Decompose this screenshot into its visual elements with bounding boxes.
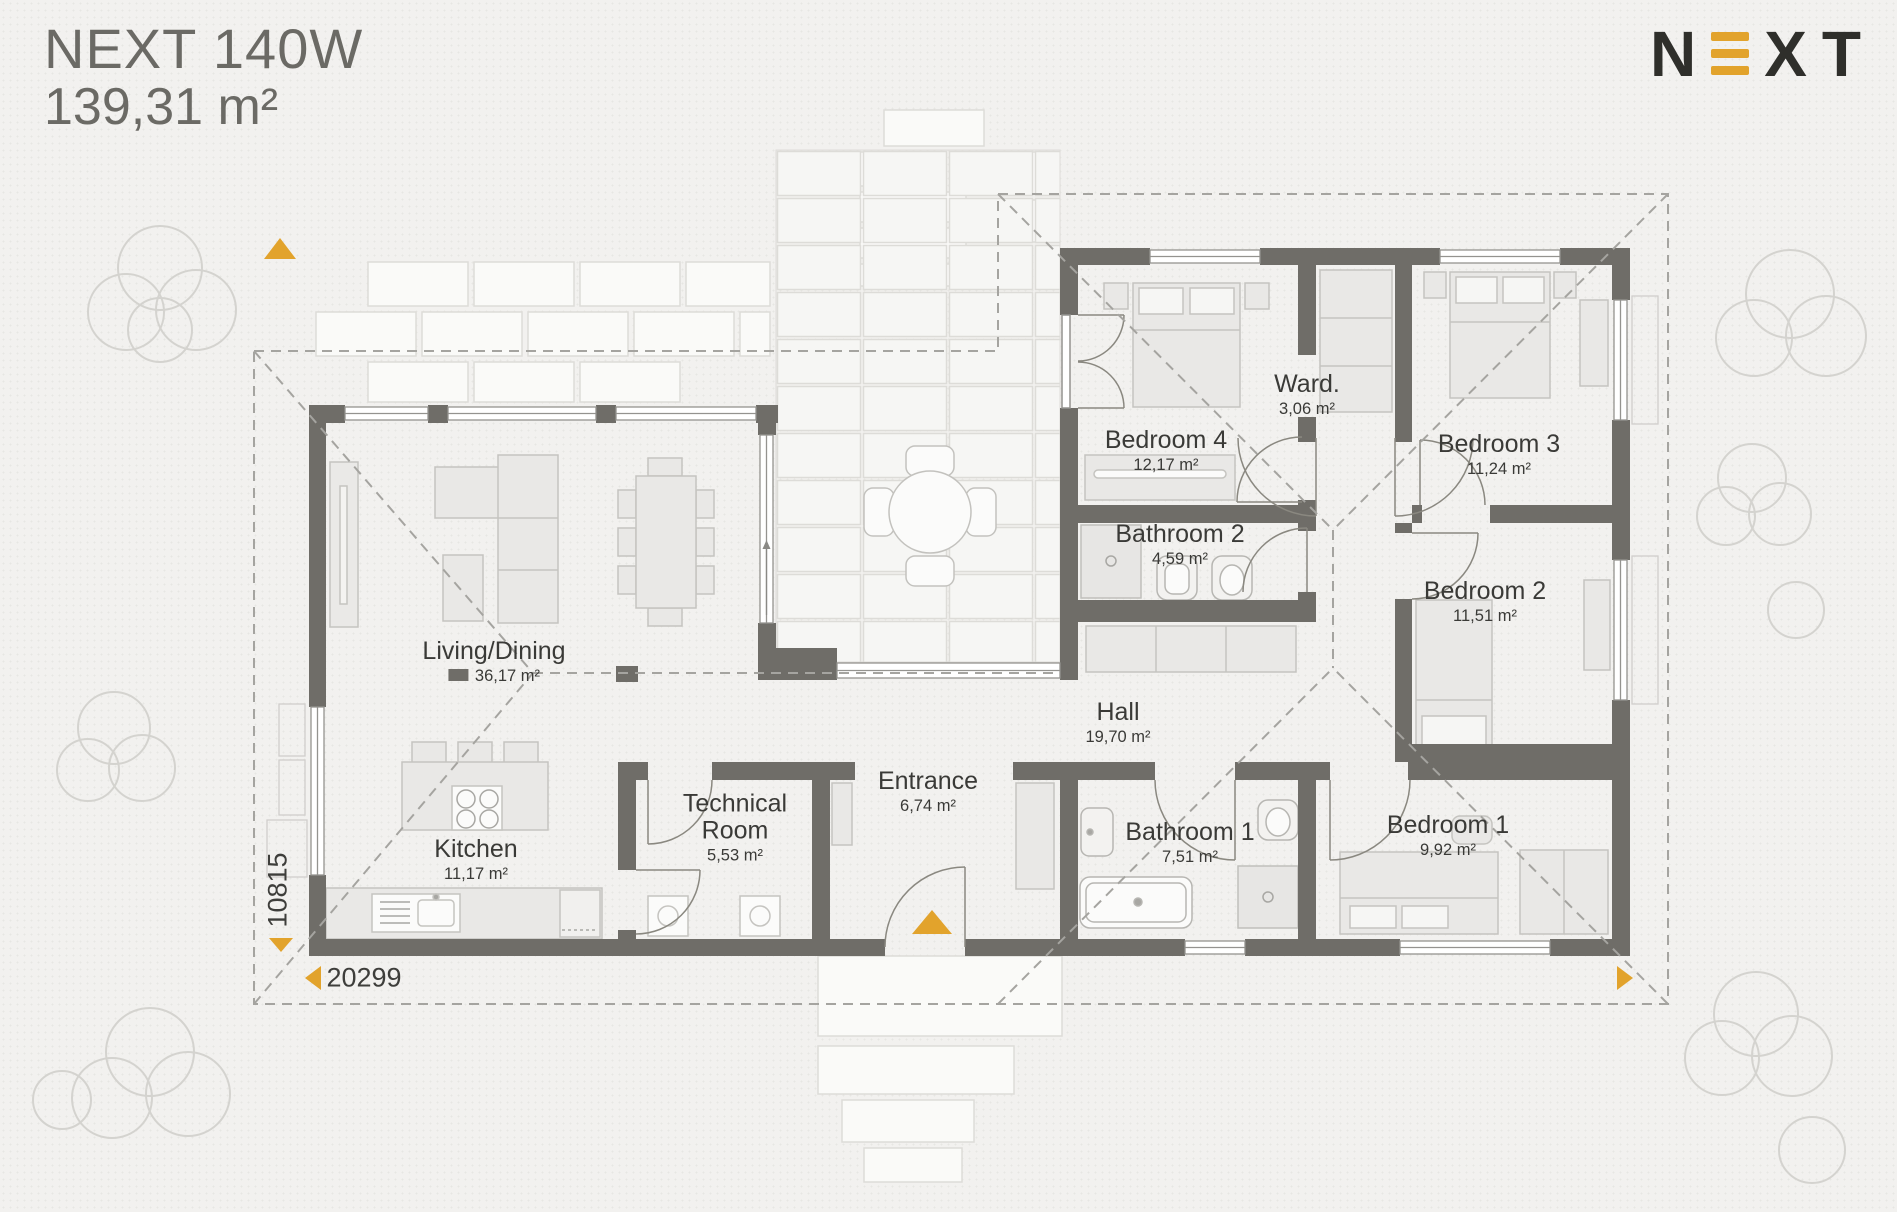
- toilet: [1258, 800, 1298, 840]
- dim-arrow-down-icon: [269, 938, 293, 952]
- tree-icon: [1697, 444, 1824, 638]
- shower: [1238, 866, 1298, 928]
- bed: [1104, 283, 1269, 407]
- living-legend-square: [448, 669, 468, 681]
- room-label-wardrobe: Ward. 3,06 m²: [1274, 371, 1340, 419]
- room-label-bathroom1: Bathroom 1 7,51 m²: [1125, 819, 1254, 867]
- logo-e-bars-icon: [1711, 30, 1749, 78]
- tree-icon: [1685, 972, 1845, 1183]
- entrance-closet: [1016, 783, 1054, 889]
- logo-letter-x: X: [1764, 22, 1807, 86]
- tv-cabinet: [330, 462, 358, 627]
- kitchen-counter: [326, 888, 602, 939]
- bathtub: [1080, 877, 1192, 928]
- tree-icon: [57, 692, 175, 801]
- plan-header: NEXT 140W 139,31 m²: [44, 20, 363, 136]
- hall-wardrobe: [1086, 626, 1296, 672]
- room-label-kitchen: Kitchen 11,17 m²: [434, 836, 517, 884]
- tree-icon: [33, 1008, 230, 1138]
- washer-dryer: [648, 896, 780, 936]
- room-label-bedroom2: Bedroom 2 11,51 m²: [1424, 578, 1546, 626]
- patio-terrace: [776, 150, 1060, 662]
- entrance-closet: [832, 783, 852, 845]
- room-label-bedroom3: Bedroom 3 11,24 m²: [1438, 431, 1560, 479]
- room-label-technical: Technical Room 5,53 m²: [667, 791, 803, 866]
- bed: [1424, 272, 1608, 398]
- room-label-entrance: Entrance 6,74 m²: [878, 768, 978, 816]
- washbasin: [1081, 808, 1113, 856]
- dining-table: [618, 458, 714, 626]
- dimension-height: 10815: [263, 852, 294, 927]
- tree-icon: [1716, 250, 1866, 376]
- dim-arrow-right-icon: [1617, 966, 1633, 990]
- tree-icon: [88, 226, 236, 362]
- plan-title: NEXT 140W: [44, 20, 363, 79]
- room-label-bathroom2: Bathroom 2 4,59 m²: [1115, 521, 1244, 569]
- room-label-living: Living/Dining 36,17 m²: [422, 638, 565, 686]
- logo-letter-t: T: [1822, 22, 1861, 86]
- floorplan-page: NEXT 140W 139,31 m² N X T Living/Dining …: [0, 0, 1897, 1212]
- front-door: [885, 867, 965, 947]
- plan-total-area: 139,31 m²: [44, 79, 363, 136]
- entrance-arrow-icon: [912, 910, 952, 934]
- room-label-hall: Hall 19,70 m²: [1085, 699, 1150, 747]
- north-arrow-icon: [264, 238, 296, 259]
- patio-double-door: [1062, 315, 1124, 408]
- sofa: [435, 455, 558, 623]
- kitchen-island: [402, 742, 548, 830]
- brand-logo: N X T: [1650, 22, 1861, 86]
- bedroom4-door: [1237, 437, 1302, 502]
- dim-arrow-left-icon: [305, 966, 321, 990]
- dimension-width: 20299: [326, 963, 401, 994]
- room-label-bedroom4: Bedroom 4 12,17 m²: [1105, 427, 1227, 475]
- logo-letter-n: N: [1650, 22, 1696, 86]
- room-label-bedroom1: Bedroom 1 9,92 m²: [1387, 812, 1509, 860]
- floorplan-drawing: [0, 0, 1897, 1212]
